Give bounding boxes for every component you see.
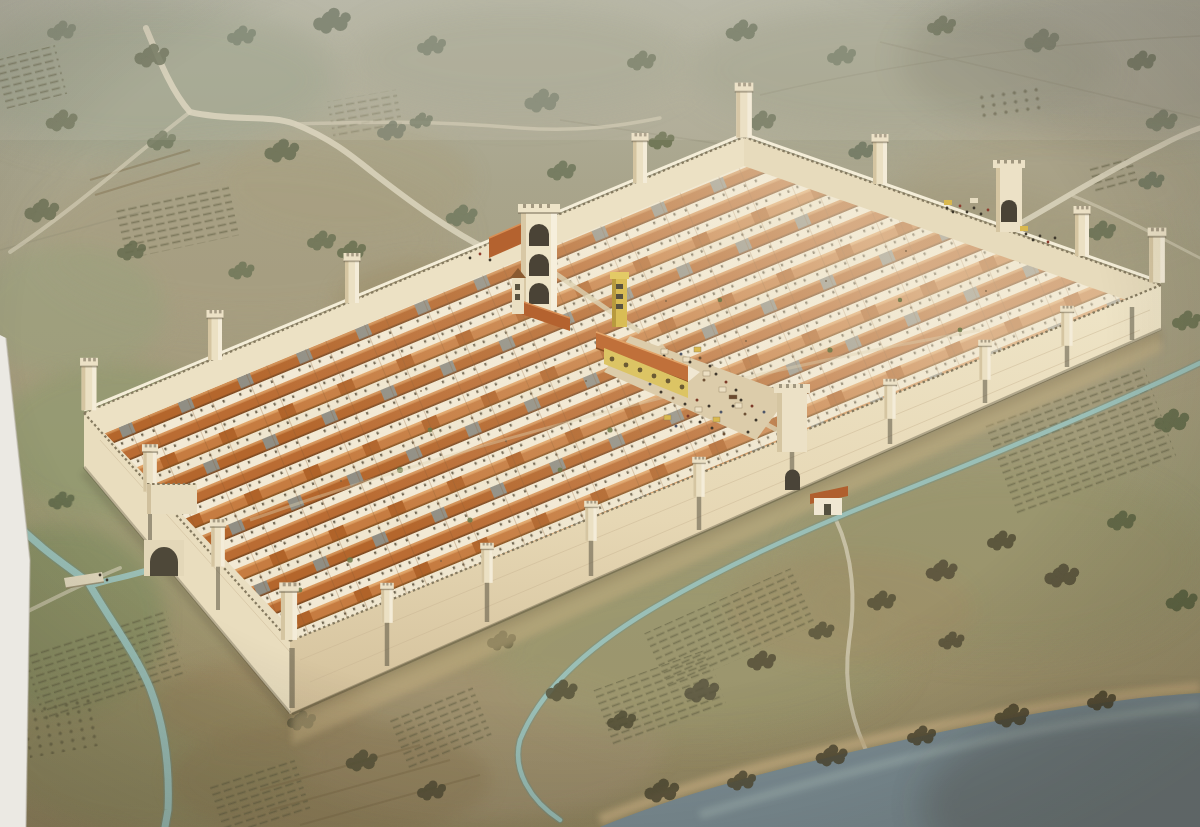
medieval-city-aerial-illustration — [0, 0, 1200, 827]
photo-vignette — [0, 0, 1200, 827]
illustration-canvas — [0, 0, 1200, 827]
